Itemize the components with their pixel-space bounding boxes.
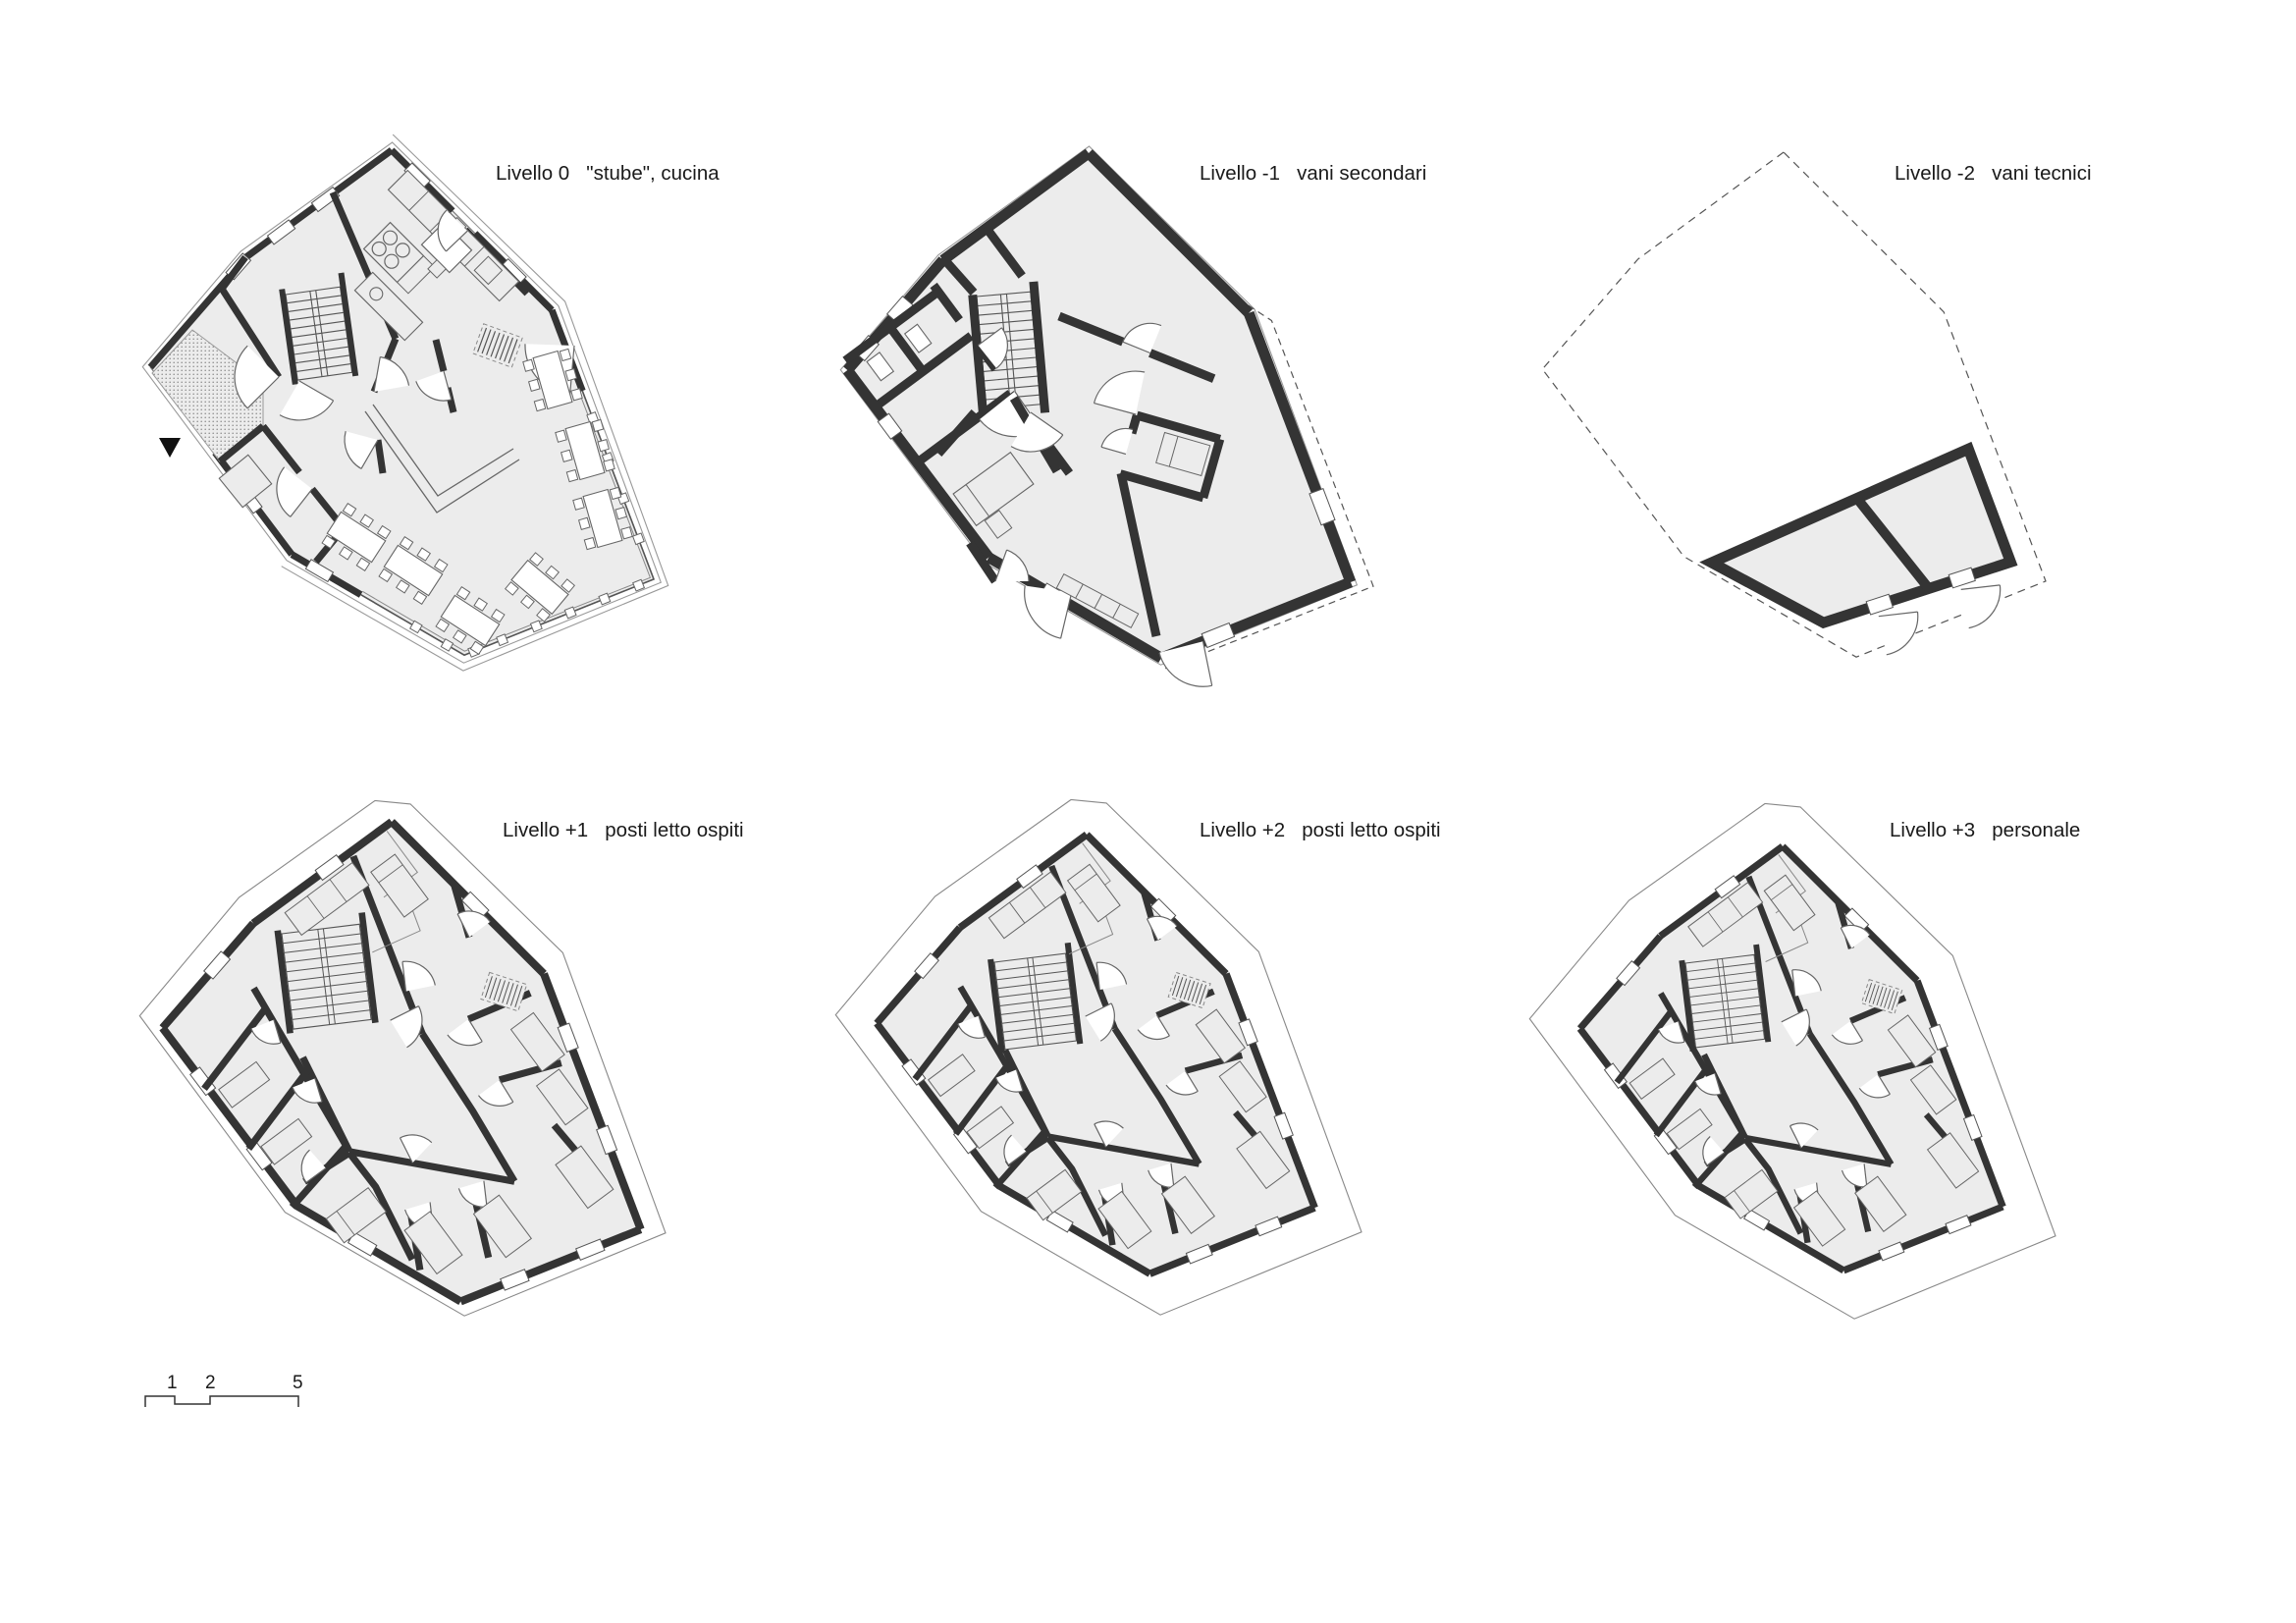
svg-text:2: 2 (205, 1373, 216, 1393)
svg-text:Livello -2 vani tecnici: Livello -2 vani tecnici (1895, 162, 2092, 185)
svg-text:5: 5 (293, 1373, 303, 1393)
svg-text:Livello -1 vani secondari: Livello -1 vani secondari (1200, 162, 1426, 185)
svg-text:Livello +3 personale: Livello +3 personale (1890, 819, 2080, 841)
svg-text:Livello +1 posti letto ospit: Livello +1 posti letto ospiti (503, 819, 744, 841)
svg-text:Livello 0 "stube", cucina: Livello 0 "stube", cucina (496, 162, 720, 185)
svg-text:Livello +2 posti letto ospit: Livello +2 posti letto ospiti (1200, 819, 1441, 841)
svg-text:1: 1 (167, 1373, 178, 1393)
